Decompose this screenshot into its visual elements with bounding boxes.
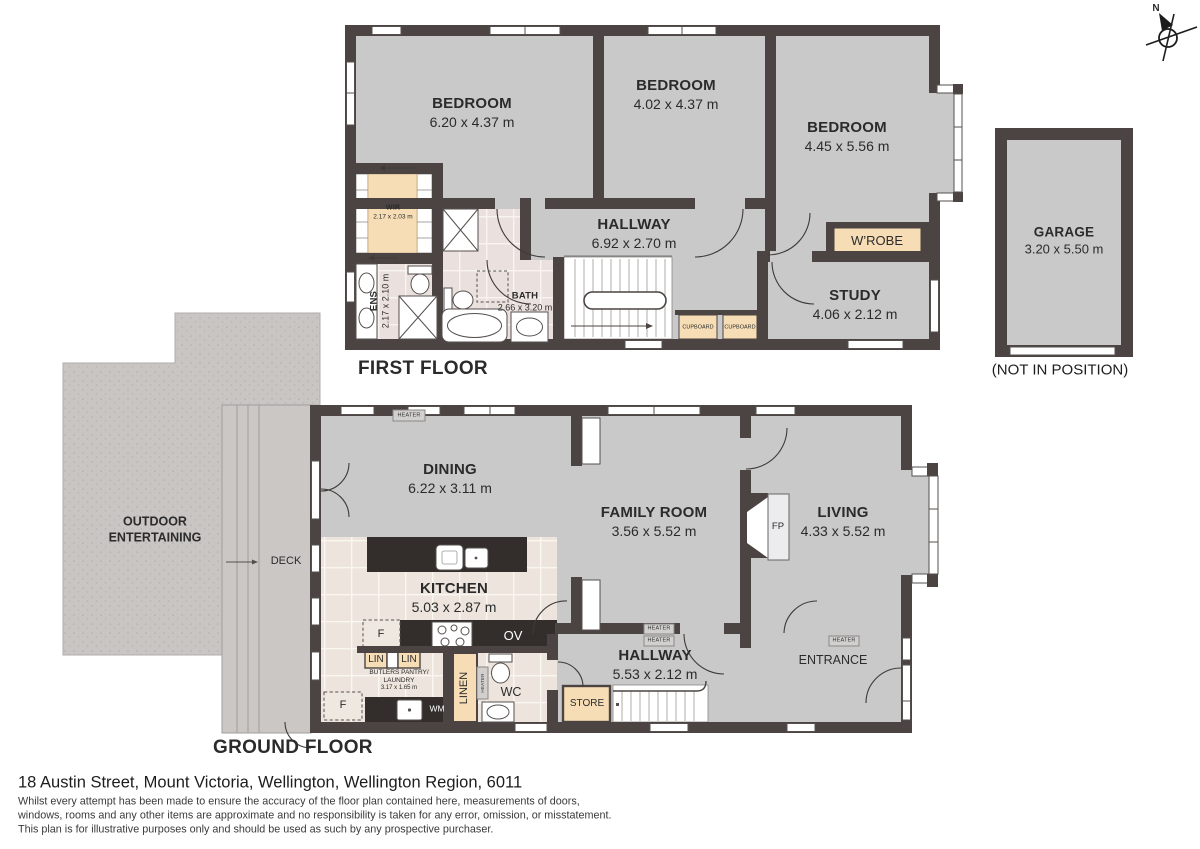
label-kitchen: KITCHEN 5.03 x 2.87 m [412, 580, 497, 616]
label-linen: LINEN [458, 672, 472, 704]
label-lin-2: LIN [401, 654, 417, 667]
label-wc: WC [501, 685, 522, 701]
label-wardrobe: W’ROBE [851, 233, 903, 249]
label-heater-hallway-1: HEATER [647, 626, 670, 633]
label-ens: ENS 2.17 x 2.10 m [368, 274, 391, 329]
label-fireplace: FP [772, 521, 784, 533]
disclaimer-line-2: windows, rooms and any other items are a… [18, 809, 612, 822]
ground-floor-title: GROUND FLOOR [213, 736, 373, 760]
label-heater-hallway-2: HEATER [647, 638, 670, 645]
label-study: STUDY 4.06 x 2.12 m [813, 287, 898, 323]
address: 18 Austin Street, Mount Victoria, Wellin… [18, 773, 522, 794]
label-dining: DINING 6.22 x 3.11 m [408, 461, 492, 497]
label-family-room: FAMILY ROOM 3.56 x 5.52 m [601, 504, 707, 540]
label-heater-dining: HEATER [397, 413, 420, 420]
label-wir: WIR 2.17 x 2.03 m [373, 205, 412, 222]
floor-plan-drawing [0, 0, 1200, 849]
first-floor-title: FIRST FLOOR [358, 357, 488, 381]
label-fridge-2: F [340, 699, 347, 713]
label-living: LIVING 4.33 x 5.52 m [801, 504, 886, 540]
label-lin-1: LIN [368, 654, 384, 667]
label-heater-entrance: HEATER [832, 638, 855, 645]
label-entrance: ENTRANCE [799, 653, 868, 669]
label-hallway-ground: HALLWAY 5.53 x 2.12 m [613, 647, 698, 683]
label-hallway-first: HALLWAY 6.92 x 2.70 m [592, 216, 677, 252]
label-outdoor-entertaining: OUTDOOR ENTERTAINING [109, 514, 202, 545]
deck-area [222, 405, 311, 733]
label-oven: OV [504, 628, 523, 644]
label-garage: GARAGE 3.20 x 5.50 m [1025, 224, 1104, 257]
disclaimer-line-1: Whilst every attempt has been made to en… [18, 795, 580, 808]
label-heater-wc: HEATER [480, 673, 486, 692]
ground-floor-plan [285, 405, 938, 748]
compass-north-label: N [1152, 3, 1159, 16]
label-deck: DECK [271, 555, 302, 569]
compass-icon [1146, 13, 1197, 61]
label-store: STORE [570, 698, 604, 711]
label-butlers-pantry: BUTLERS PANTRY/ LAUNDRY 3.17 x 1.65 m [369, 669, 428, 693]
label-bath: BATH 2.66 x 3.20 m [498, 290, 553, 313]
label-cupboard-1: CUPBOARD [682, 325, 713, 332]
floor-plan-page: { "compass": { "north": "N" }, "first_fl… [0, 0, 1200, 849]
label-fridge-1: F [378, 628, 385, 642]
garage-note: (NOT IN POSITION) [992, 362, 1128, 381]
disclaimer-line-3: This plan is for illustrative purposes o… [18, 823, 493, 836]
label-bedroom2: BEDROOM 4.02 x 4.37 m [634, 77, 719, 113]
label-wm: WM [429, 704, 444, 715]
label-bedroom3: BEDROOM 4.45 x 5.56 m [805, 119, 890, 155]
label-bedroom1: BEDROOM 6.20 x 4.37 m [430, 95, 515, 131]
label-cupboard-2: CUPBOARD [724, 325, 755, 332]
